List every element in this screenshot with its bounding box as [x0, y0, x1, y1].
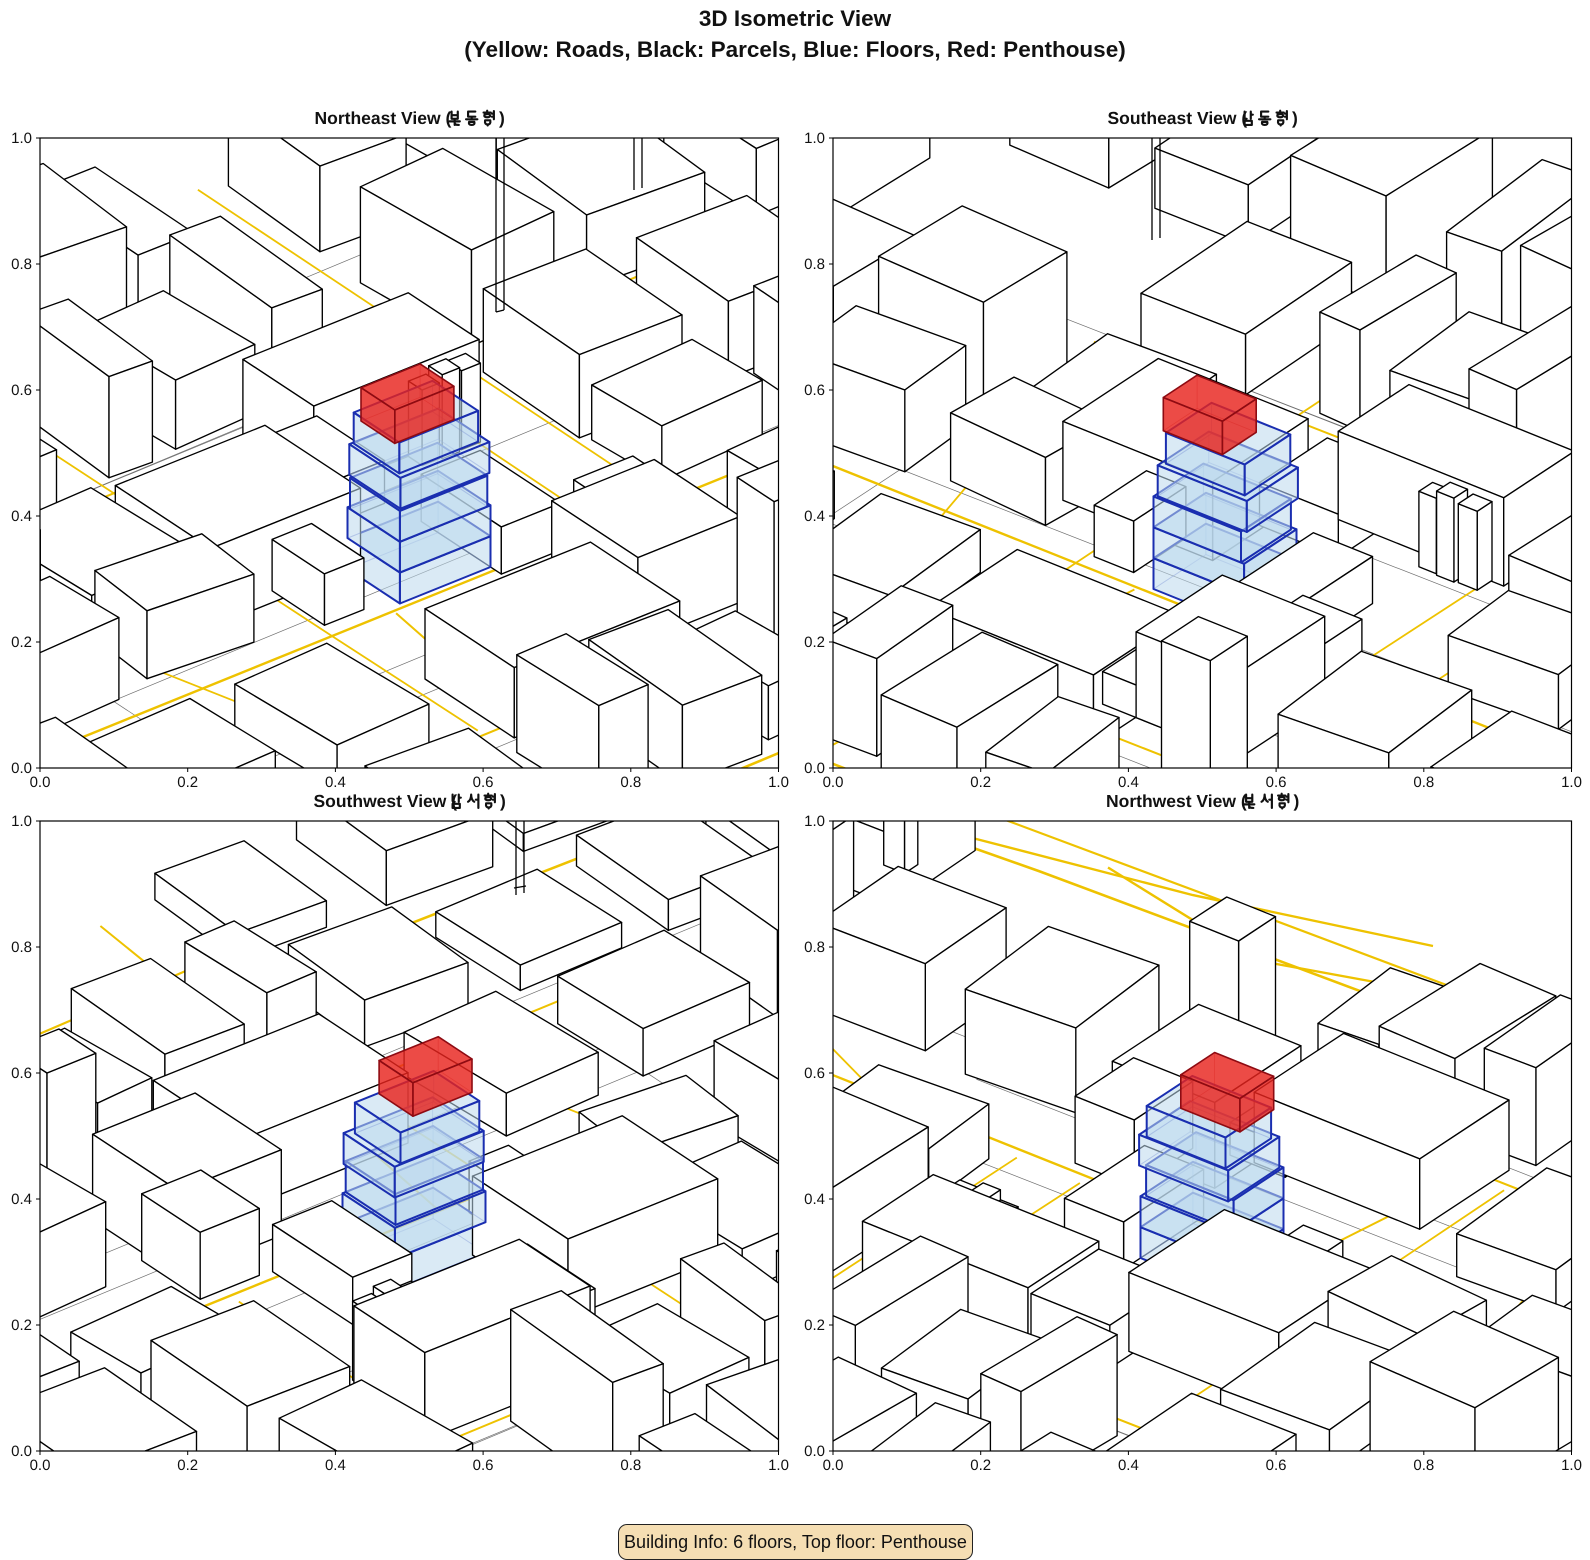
svg-text:0.6: 0.6 — [473, 1457, 494, 1474]
svg-text:0.0: 0.0 — [823, 774, 844, 791]
svg-text:Northwest View (: Northwest View ( — [1106, 791, 1247, 811]
svg-text:0.0: 0.0 — [823, 1457, 844, 1474]
svg-text:1.0: 1.0 — [1561, 774, 1582, 791]
svg-text:0.6: 0.6 — [11, 1065, 32, 1082]
svg-text:0.2: 0.2 — [804, 634, 825, 651]
svg-text:0.2: 0.2 — [11, 634, 32, 651]
svg-text:0.6: 0.6 — [473, 774, 494, 791]
svg-text:0.8: 0.8 — [11, 939, 32, 956]
svg-text:Northeast View (: Northeast View ( — [315, 108, 452, 128]
svg-text:0.8: 0.8 — [1413, 774, 1434, 791]
svg-text:): ) — [500, 791, 506, 811]
svg-text:1.0: 1.0 — [11, 130, 32, 147]
svg-text:0.6: 0.6 — [804, 1065, 825, 1082]
svg-text:): ) — [499, 108, 505, 128]
svg-text:1.0: 1.0 — [804, 813, 825, 830]
svg-text:0.2: 0.2 — [970, 774, 991, 791]
svg-text:1.0: 1.0 — [768, 774, 789, 791]
svg-text:0.4: 0.4 — [11, 1191, 32, 1208]
svg-text:1.0: 1.0 — [804, 130, 825, 147]
svg-text:0.4: 0.4 — [1118, 774, 1139, 791]
svg-text:0.8: 0.8 — [804, 939, 825, 956]
svg-text:Southwest View (: Southwest View ( — [314, 791, 458, 811]
svg-text:): ) — [1294, 791, 1300, 811]
svg-text:0.2: 0.2 — [11, 1317, 32, 1334]
svg-text:0.0: 0.0 — [804, 1443, 825, 1460]
svg-text:): ) — [1292, 108, 1298, 128]
svg-text:0.4: 0.4 — [11, 508, 32, 525]
svg-text:0.6: 0.6 — [804, 382, 825, 399]
svg-text:Southeast View (: Southeast View ( — [1108, 108, 1248, 128]
svg-text:0.8: 0.8 — [620, 774, 641, 791]
svg-text:0.4: 0.4 — [804, 1191, 825, 1208]
svg-text:0.6: 0.6 — [11, 382, 32, 399]
svg-text:0.2: 0.2 — [804, 1317, 825, 1334]
svg-text:0.8: 0.8 — [620, 1457, 641, 1474]
svg-text:0.0: 0.0 — [30, 1457, 51, 1474]
svg-text:0.2: 0.2 — [970, 1457, 991, 1474]
svg-text:0.4: 0.4 — [325, 1457, 346, 1474]
svg-text:0.0: 0.0 — [804, 760, 825, 777]
svg-text:0.8: 0.8 — [11, 256, 32, 273]
svg-text:0.6: 0.6 — [1266, 1457, 1287, 1474]
svg-text:0.2: 0.2 — [177, 1457, 198, 1474]
svg-text:1.0: 1.0 — [11, 813, 32, 830]
svg-text:0.0: 0.0 — [11, 1443, 32, 1460]
svg-text:1.0: 1.0 — [768, 1457, 789, 1474]
svg-text:1.0: 1.0 — [1561, 1457, 1582, 1474]
svg-text:0.8: 0.8 — [804, 256, 825, 273]
svg-text:0.4: 0.4 — [804, 508, 825, 525]
svg-text:0.0: 0.0 — [30, 774, 51, 791]
svg-text:0.6: 0.6 — [1266, 774, 1287, 791]
svg-text:0.0: 0.0 — [11, 760, 32, 777]
svg-text:0.4: 0.4 — [1118, 1457, 1139, 1474]
svg-text:0.8: 0.8 — [1413, 1457, 1434, 1474]
svg-text:0.2: 0.2 — [177, 774, 198, 791]
svg-text:0.4: 0.4 — [325, 774, 346, 791]
